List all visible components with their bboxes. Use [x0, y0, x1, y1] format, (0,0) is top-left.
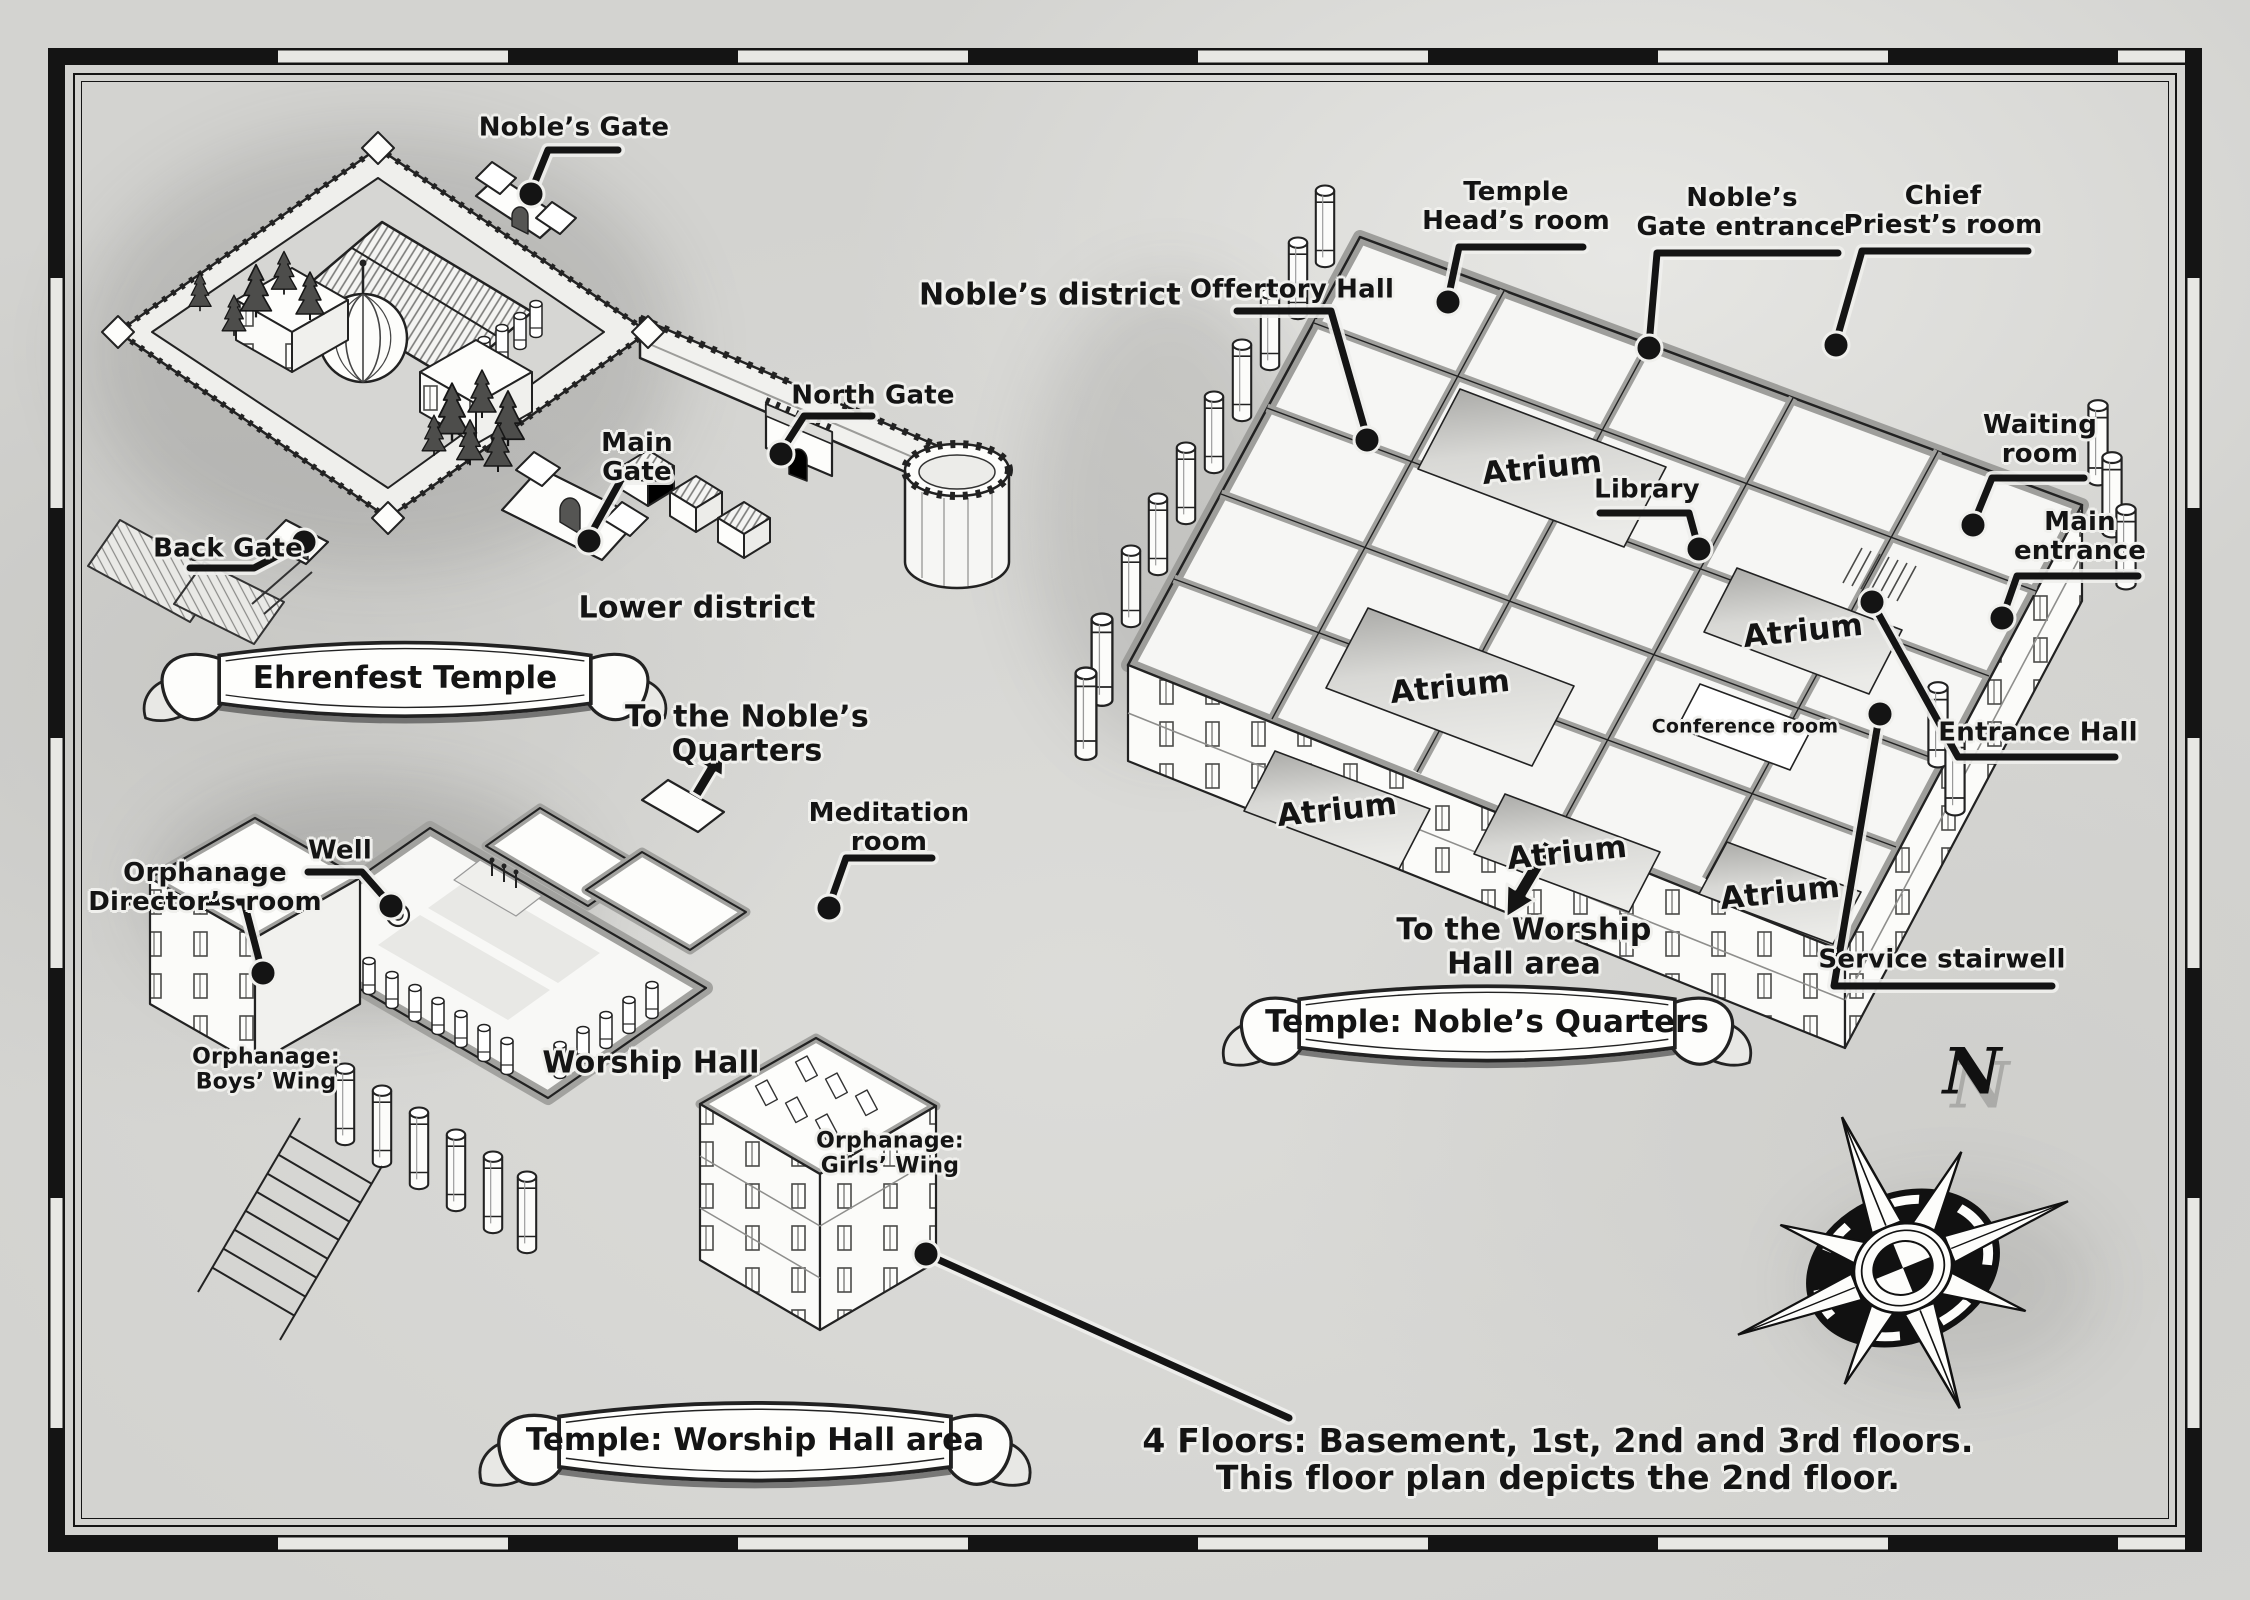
- label-worship-hall: Worship Hall: [542, 1047, 759, 1080]
- banner-nobles-quarters: Temple: Noble’s Quarters: [1265, 1004, 1709, 1040]
- label-main-entrance: Main entrance: [2014, 508, 2146, 566]
- label-nobles-gate: Noble’s Gate: [479, 114, 670, 143]
- north-indicator: N: [1943, 1035, 2002, 1110]
- label-to-nobles-quarters: To the Noble’s Quarters: [625, 700, 869, 767]
- label-temple-heads-room: Temple Head’s room: [1422, 178, 1610, 236]
- label-service-stairwell: Service stairwell: [1818, 946, 2065, 975]
- label-orphanage-boys-wing: Orphanage: Boys’ Wing: [192, 1045, 340, 1094]
- temple-map-page: { "page": { "compass_north": "N", "footn…: [0, 0, 2250, 1600]
- label-library: Library: [1594, 476, 1700, 505]
- label-chief-priests-room: Chief Priest’s room: [1844, 182, 2043, 240]
- frame-band-left: [48, 48, 65, 1552]
- frame-band-bottom: [48, 1535, 2202, 1552]
- label-waiting-room: Waiting room: [1983, 411, 2097, 469]
- banner-worship-hall-area: Temple: Worship Hall area: [526, 1422, 984, 1458]
- banner-ehrenfest-temple: Ehrenfest Temple: [253, 660, 557, 696]
- label-offertory-hall: Offertory Hall: [1190, 276, 1394, 305]
- footnote: 4 Floors: Basement, 1st, 2nd and 3rd flo…: [1142, 1423, 1973, 1497]
- label-orphanage-directors-room: Orphanage Director’s room: [88, 859, 322, 917]
- label-nobles-gate-entrance: Noble’s Gate entrance: [1636, 184, 1847, 242]
- frame-band-right: [2185, 48, 2202, 1552]
- label-orphanage-girls-wing: Orphanage: Girls’ Wing: [816, 1129, 964, 1178]
- label-main-gate: Main Gate: [601, 429, 673, 487]
- label-back-gate: Back Gate: [153, 535, 303, 564]
- label-north-gate: North Gate: [791, 382, 954, 411]
- frame-band-top: [48, 48, 2202, 65]
- label-meditation-room: Meditation room: [809, 799, 970, 857]
- label-entrance-hall: Entrance Hall: [1938, 719, 2137, 748]
- label-conference-room: Conference room: [1652, 717, 1839, 738]
- label-nobles-district: Noble’s district: [919, 279, 1181, 312]
- label-to-worship-hall-area: To the Worship Hall area: [1396, 913, 1651, 980]
- label-lower-district: Lower district: [579, 592, 816, 625]
